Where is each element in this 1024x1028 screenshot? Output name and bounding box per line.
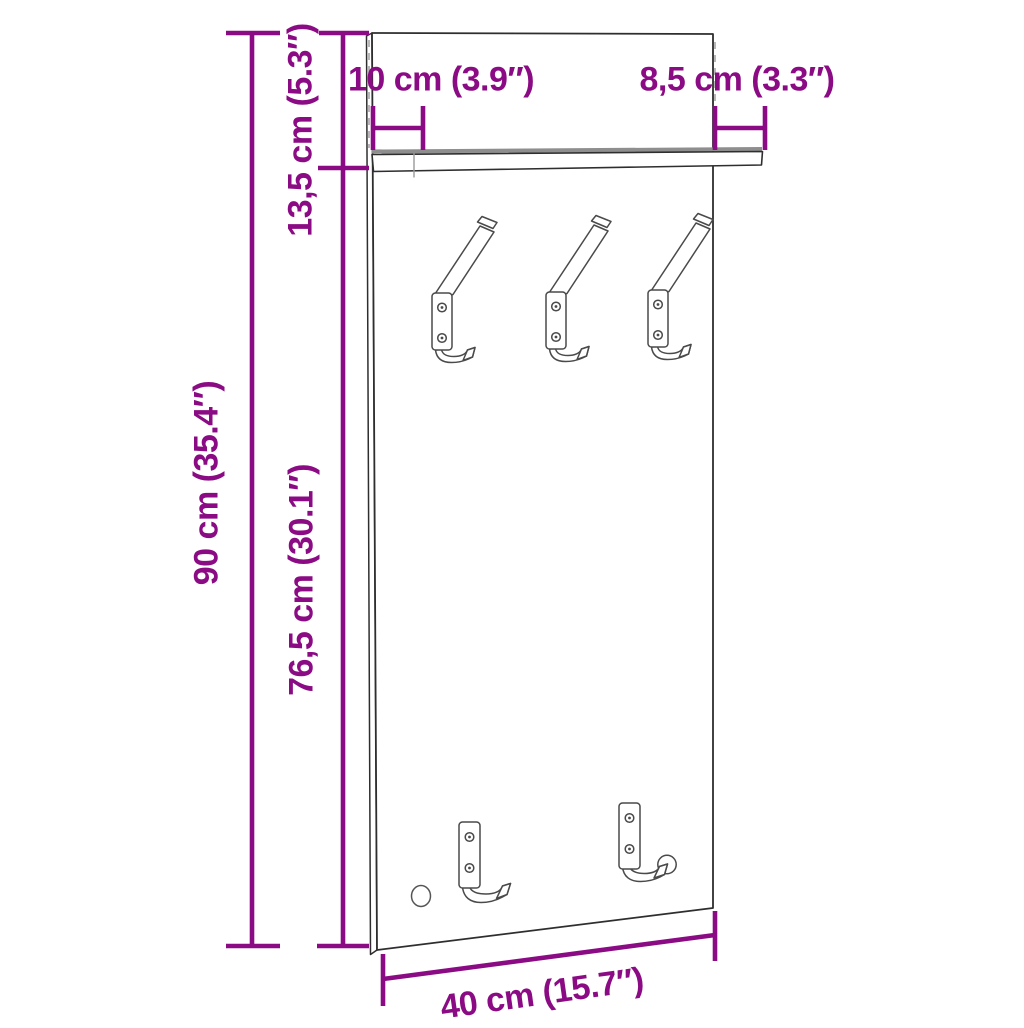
dimension-label-total-height: 90 cm (35.4″) — [188, 381, 227, 585]
dim-bar-shelf-right — [715, 106, 765, 150]
dimension-label-upper-height: 13,5 cm (5.3″) — [282, 23, 321, 236]
shelf-top-edge — [372, 149, 762, 152]
dimension-diagram: 10 cm (3.9″) 8,5 cm (3.3″) 13,5 cm (5.3″… — [0, 0, 1024, 1024]
diagram-linework — [0, 0, 1024, 1024]
dimension-label-lower-height: 76,5 cm (30.1″) — [283, 464, 322, 696]
dimension-label-shelf-overhang-left: 10 cm (3.9″) — [348, 61, 534, 100]
dim-line-split-heights — [317, 33, 369, 946]
dim-line-total-height — [226, 33, 280, 946]
dimension-label-shelf-overhang-right: 8,5 cm (3.3″) — [640, 61, 835, 100]
mounting-hole — [412, 886, 431, 907]
